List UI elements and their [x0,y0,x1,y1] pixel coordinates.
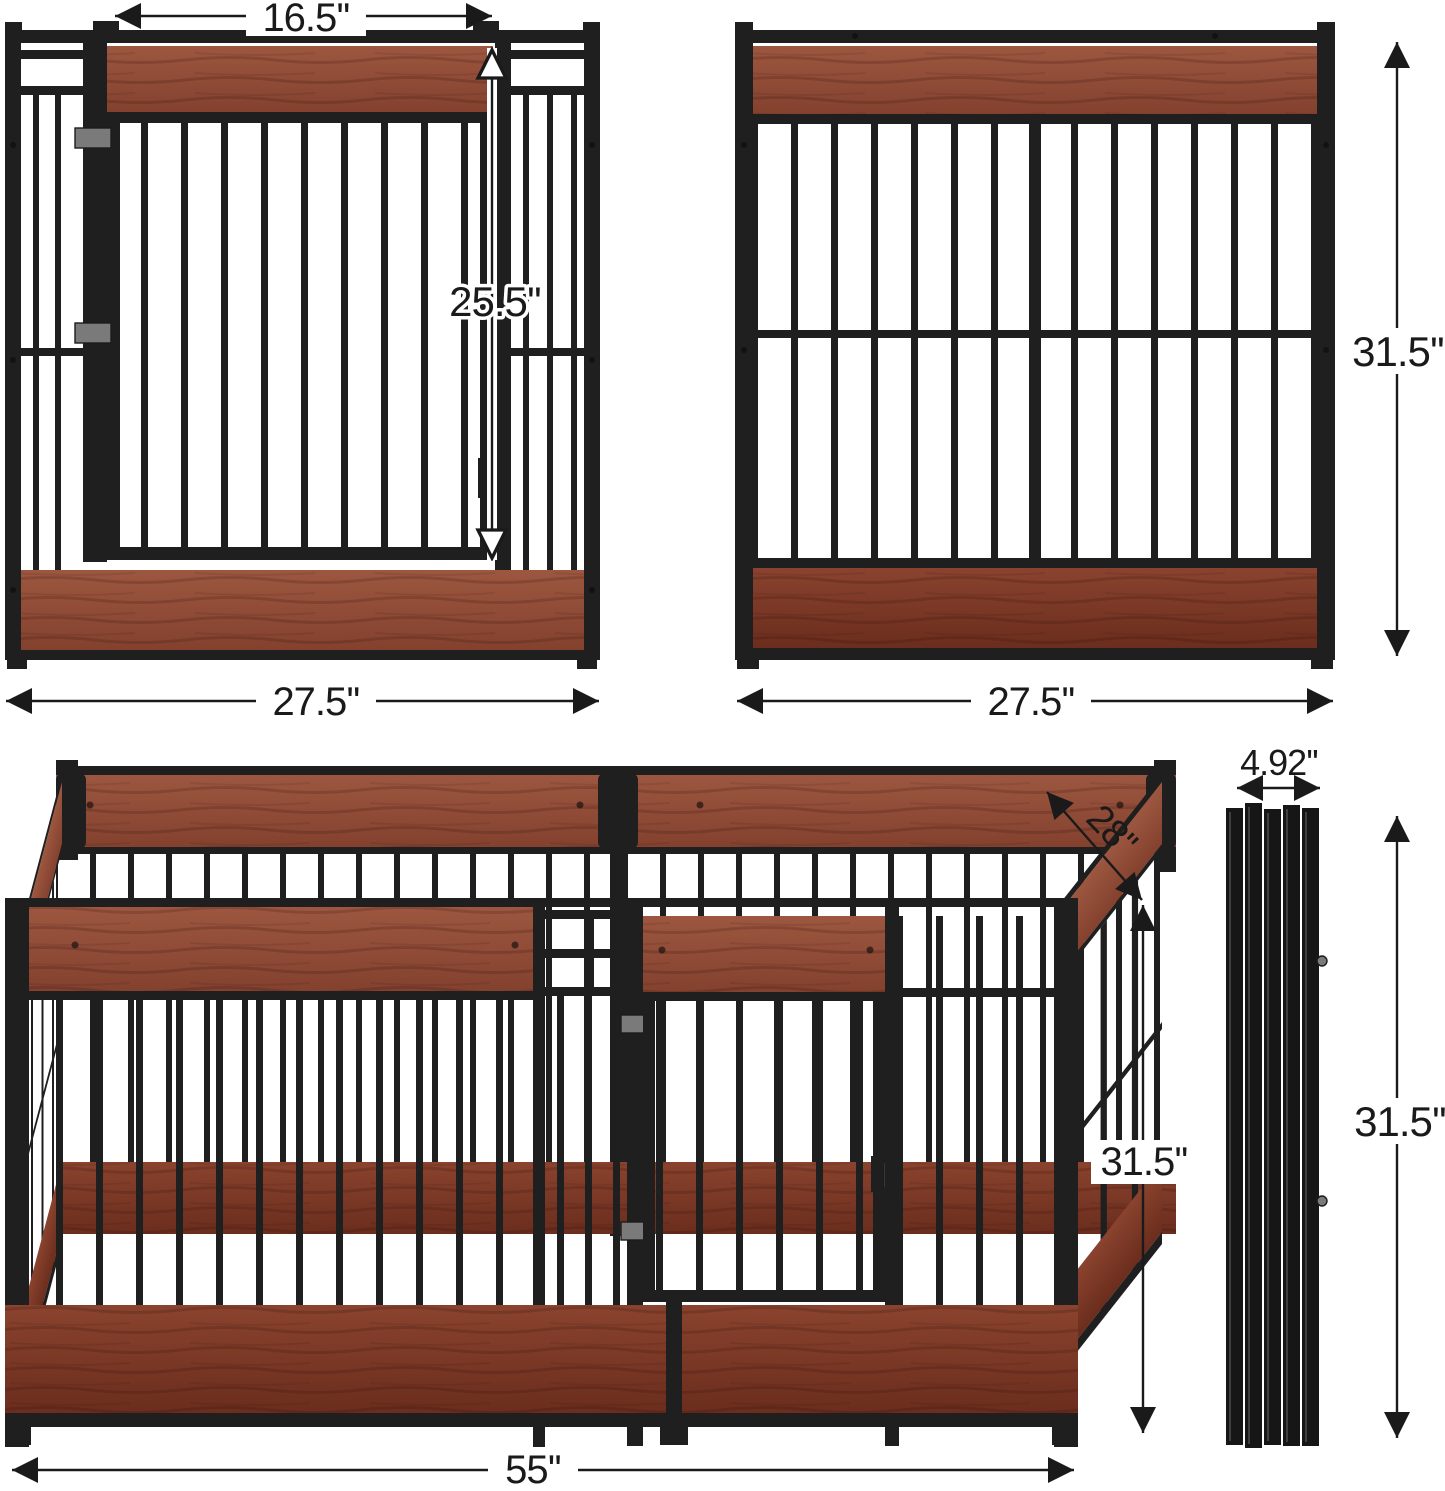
dim-folded-width-label: 4.92'' [1240,742,1318,783]
latch-post [495,30,511,660]
assembled-pen-figure [5,760,1176,1447]
dim-right-panel-width-label: 27.5'' [987,680,1074,724]
product-dimension-diagram: 16.5'' 25.5'' 31.5'' 27.5'' 27.5'' 28'' … [0,0,1445,1491]
pen-front-left-bars [29,1000,533,1305]
dimension-diagram-svg: 16.5'' 25.5'' 31.5'' 27.5'' 27.5'' 28'' … [0,0,1445,1491]
pen-front-bottom-plank [5,1305,1078,1413]
door-bars [120,123,480,547]
pen-door [643,916,892,1302]
plain-panel-bottom-plank [753,568,1317,648]
dim-panel-height-label: 31.5'' [1352,328,1444,375]
pen-front-left-plank [29,907,533,991]
dim-pen-height-label: 31.5'' [1100,1140,1187,1184]
plain-panel-top-plank [753,46,1317,114]
door-panel-bottom-plank [21,570,584,650]
dim-door-width-label: 16.5'' [262,0,349,40]
folded-slats [1226,803,1319,1448]
door-hinge-post [83,30,107,562]
plain-panel-mid-rail [753,330,1317,338]
folded-latch-knob-top [1317,956,1327,966]
door-panel-figure [5,21,600,669]
pen-front-right-bars [899,916,1054,1305]
door-hinge-bottom [75,323,111,343]
door [75,46,502,560]
folded-panels-figure [1226,803,1327,1448]
pen-door-latch [871,1156,883,1192]
folded-latch-knob-bottom [1317,1196,1327,1206]
dim-door-height-label: 25.5'' [449,278,541,325]
left-side-section [21,50,83,570]
dim-left-panel-width-label: 27.5'' [272,680,359,724]
dim-pen-width-label: 55'' [505,1448,561,1491]
dim-folded-height-label: 31.5'' [1354,1098,1445,1145]
door-hinge-top [75,128,111,148]
plain-panel-figure [735,22,1335,669]
plain-panel-center-post [1029,124,1041,558]
